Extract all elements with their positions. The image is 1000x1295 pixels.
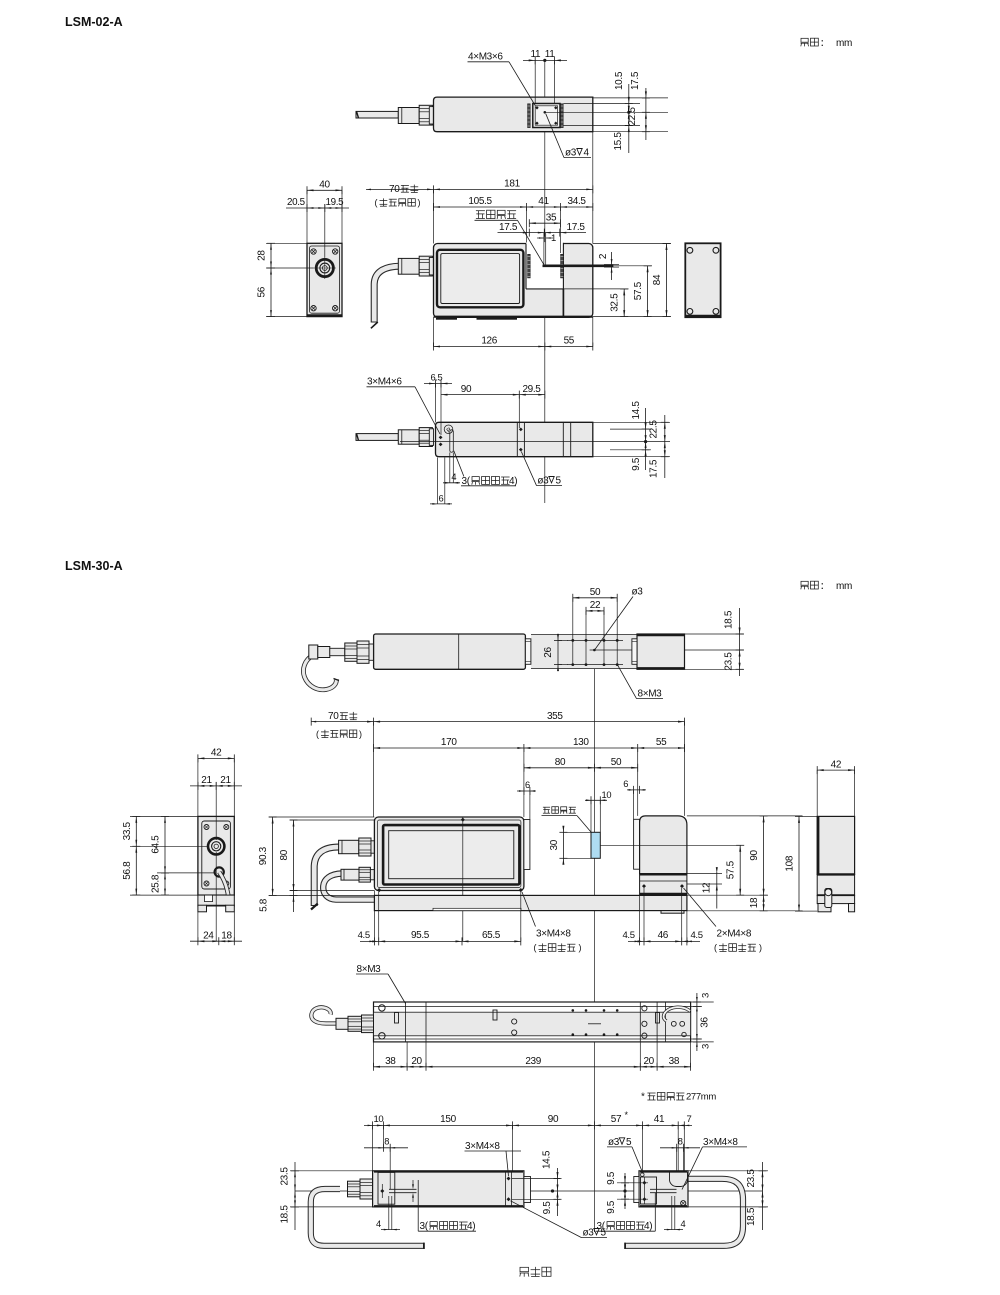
- svg-text:mm: mm: [836, 38, 852, 49]
- svg-text:4×M3×6: 4×M3×6: [468, 52, 503, 63]
- svg-text:4.5: 4.5: [358, 930, 370, 941]
- svg-text:5.8: 5.8: [259, 898, 270, 912]
- svg-text:15.5: 15.5: [613, 132, 624, 151]
- svg-text:12: 12: [702, 882, 713, 893]
- svg-text:17.5: 17.5: [649, 459, 660, 478]
- svg-text:29.5: 29.5: [522, 384, 541, 395]
- svg-text:277mm: 277mm: [686, 1092, 716, 1103]
- svg-text:8×M3: 8×M3: [638, 689, 663, 700]
- svg-text:70: 70: [389, 184, 400, 195]
- svg-text:26: 26: [543, 647, 554, 658]
- svg-text:55: 55: [564, 336, 575, 347]
- svg-text:70: 70: [328, 711, 339, 722]
- svg-text:36: 36: [700, 1017, 711, 1028]
- svg-text:(: (: [316, 729, 319, 739]
- svg-text:6: 6: [623, 779, 628, 789]
- svg-text:): ): [418, 198, 421, 208]
- svg-text:10: 10: [602, 790, 612, 800]
- svg-text:5: 5: [626, 1137, 632, 1148]
- svg-text:18.5: 18.5: [280, 1205, 291, 1224]
- svg-text:50: 50: [611, 757, 622, 768]
- svg-text:：: ：: [820, 581, 829, 591]
- svg-text:57.5: 57.5: [726, 860, 737, 879]
- svg-text:239: 239: [525, 1056, 541, 1067]
- svg-text:6: 6: [439, 493, 444, 503]
- svg-text:(: (: [714, 943, 717, 953]
- svg-text:170: 170: [441, 737, 457, 748]
- svg-text:): ): [579, 943, 582, 953]
- svg-text:9.5: 9.5: [606, 1171, 617, 1185]
- svg-text:50: 50: [590, 587, 601, 598]
- svg-text:30: 30: [549, 839, 560, 850]
- svg-text:(: (: [375, 198, 378, 208]
- svg-text:7: 7: [687, 1114, 692, 1125]
- svg-text:8×M3: 8×M3: [357, 964, 382, 975]
- svg-text:17.5: 17.5: [630, 71, 641, 90]
- svg-text:64.5: 64.5: [151, 835, 162, 854]
- svg-text:3×M4×6: 3×M4×6: [367, 377, 402, 388]
- svg-text:80: 80: [279, 849, 290, 860]
- svg-text:25.8: 25.8: [151, 874, 162, 893]
- svg-text:9.5: 9.5: [542, 1201, 553, 1215]
- svg-text:4: 4: [584, 148, 590, 159]
- svg-text:21: 21: [220, 775, 231, 786]
- svg-text:33.5: 33.5: [122, 822, 133, 841]
- svg-text:105.5: 105.5: [468, 196, 492, 207]
- svg-text:14.5: 14.5: [631, 401, 642, 420]
- svg-text:11: 11: [531, 49, 541, 60]
- svg-text:38: 38: [669, 1056, 680, 1067]
- svg-text:*: *: [641, 1092, 645, 1103]
- svg-text:10: 10: [374, 1114, 384, 1125]
- svg-text:19.5: 19.5: [326, 197, 345, 208]
- svg-text:22.5: 22.5: [627, 107, 638, 126]
- svg-text:3×M4×8: 3×M4×8: [536, 929, 571, 940]
- svg-text:32.5: 32.5: [610, 293, 621, 312]
- svg-text:3(: 3(: [597, 1221, 606, 1232]
- svg-text:：: ：: [820, 38, 829, 48]
- svg-text:ø3: ø3: [537, 476, 549, 487]
- svg-text:90: 90: [749, 850, 760, 861]
- svg-text:4: 4: [376, 1219, 381, 1229]
- svg-text:3: 3: [701, 1044, 712, 1049]
- svg-text:14.5: 14.5: [542, 1150, 553, 1169]
- svg-text:108: 108: [785, 855, 796, 871]
- svg-text:38: 38: [385, 1056, 396, 1067]
- svg-text:57: 57: [611, 1114, 622, 1125]
- svg-text:24: 24: [203, 930, 214, 941]
- svg-text:21: 21: [201, 775, 212, 786]
- svg-text:4): 4): [509, 476, 517, 487]
- svg-text:18: 18: [749, 897, 760, 908]
- svg-text:90: 90: [548, 1114, 559, 1125]
- svg-text:9.5: 9.5: [631, 457, 642, 471]
- svg-text:34.5: 34.5: [568, 196, 587, 207]
- svg-text:42: 42: [211, 748, 222, 759]
- svg-text:42: 42: [831, 759, 842, 770]
- svg-text:23.5: 23.5: [724, 652, 735, 671]
- svg-text:mm: mm: [836, 581, 852, 592]
- svg-text:): ): [359, 729, 362, 739]
- svg-text:90.3: 90.3: [258, 846, 269, 865]
- svg-text:80: 80: [555, 757, 566, 768]
- svg-text:28: 28: [257, 250, 268, 261]
- svg-text:4): 4): [644, 1221, 652, 1232]
- svg-text:3(: 3(: [462, 476, 471, 487]
- svg-text:56: 56: [257, 286, 268, 297]
- svg-text:95.5: 95.5: [411, 930, 430, 941]
- svg-text:): ): [759, 943, 762, 953]
- svg-text:56.8: 56.8: [122, 861, 133, 880]
- svg-text:ø3: ø3: [608, 1137, 620, 1148]
- svg-text:23.5: 23.5: [746, 1169, 757, 1188]
- svg-text:18: 18: [221, 930, 232, 941]
- svg-text:84: 84: [652, 274, 663, 285]
- svg-text:17.5: 17.5: [567, 222, 586, 233]
- svg-text:6: 6: [525, 780, 530, 790]
- svg-text:55: 55: [656, 737, 667, 748]
- svg-text:2×M4×8: 2×M4×8: [717, 929, 752, 940]
- svg-text:40: 40: [319, 180, 330, 191]
- svg-text:20: 20: [411, 1056, 422, 1067]
- svg-text:LSM-30-A: LSM-30-A: [65, 559, 123, 573]
- svg-text:17.5: 17.5: [499, 222, 518, 233]
- svg-text:8: 8: [384, 1137, 389, 1147]
- svg-text:355: 355: [547, 711, 563, 722]
- svg-text:9.5: 9.5: [606, 1200, 617, 1214]
- svg-text:ø3: ø3: [565, 148, 577, 159]
- svg-text:126: 126: [481, 336, 497, 347]
- svg-text:41: 41: [538, 196, 549, 207]
- svg-text:130: 130: [573, 737, 589, 748]
- svg-text:57.5: 57.5: [633, 281, 644, 300]
- svg-text:11: 11: [545, 49, 555, 60]
- svg-text:23.5: 23.5: [280, 1167, 291, 1186]
- svg-text:22.5: 22.5: [649, 420, 660, 439]
- svg-text:18.5: 18.5: [724, 610, 735, 629]
- svg-text:10.5: 10.5: [614, 71, 625, 90]
- svg-text:2: 2: [598, 253, 609, 259]
- svg-text:6.5: 6.5: [431, 373, 443, 383]
- svg-text:41: 41: [654, 1114, 665, 1125]
- svg-text:90: 90: [461, 384, 472, 395]
- svg-text:3×M4×8: 3×M4×8: [465, 1141, 500, 1152]
- svg-text:4.5: 4.5: [623, 930, 635, 941]
- svg-text:22: 22: [590, 600, 601, 611]
- svg-text:1: 1: [551, 233, 556, 244]
- svg-text:ø3: ø3: [632, 587, 644, 598]
- svg-text:5: 5: [556, 476, 562, 487]
- svg-text:3(: 3(: [420, 1221, 429, 1232]
- svg-text:20: 20: [643, 1056, 654, 1067]
- svg-text:(: (: [534, 943, 537, 953]
- svg-text:35: 35: [546, 212, 557, 223]
- svg-text:3: 3: [701, 993, 712, 998]
- svg-text:4): 4): [467, 1221, 475, 1232]
- svg-text:20.5: 20.5: [287, 197, 306, 208]
- svg-text:4: 4: [681, 1219, 686, 1229]
- svg-text:46: 46: [658, 930, 669, 941]
- svg-text:18.5: 18.5: [746, 1207, 757, 1226]
- svg-text:3×M4×8: 3×M4×8: [703, 1137, 738, 1148]
- svg-text:8: 8: [678, 1137, 683, 1147]
- svg-text:4.5: 4.5: [691, 930, 703, 941]
- svg-text:ø3: ø3: [583, 1228, 595, 1239]
- svg-text:150: 150: [440, 1114, 456, 1125]
- svg-text:181: 181: [504, 178, 520, 189]
- svg-text:4: 4: [451, 472, 456, 482]
- svg-text:LSM-02-A: LSM-02-A: [65, 15, 123, 29]
- svg-text:65.5: 65.5: [482, 930, 501, 941]
